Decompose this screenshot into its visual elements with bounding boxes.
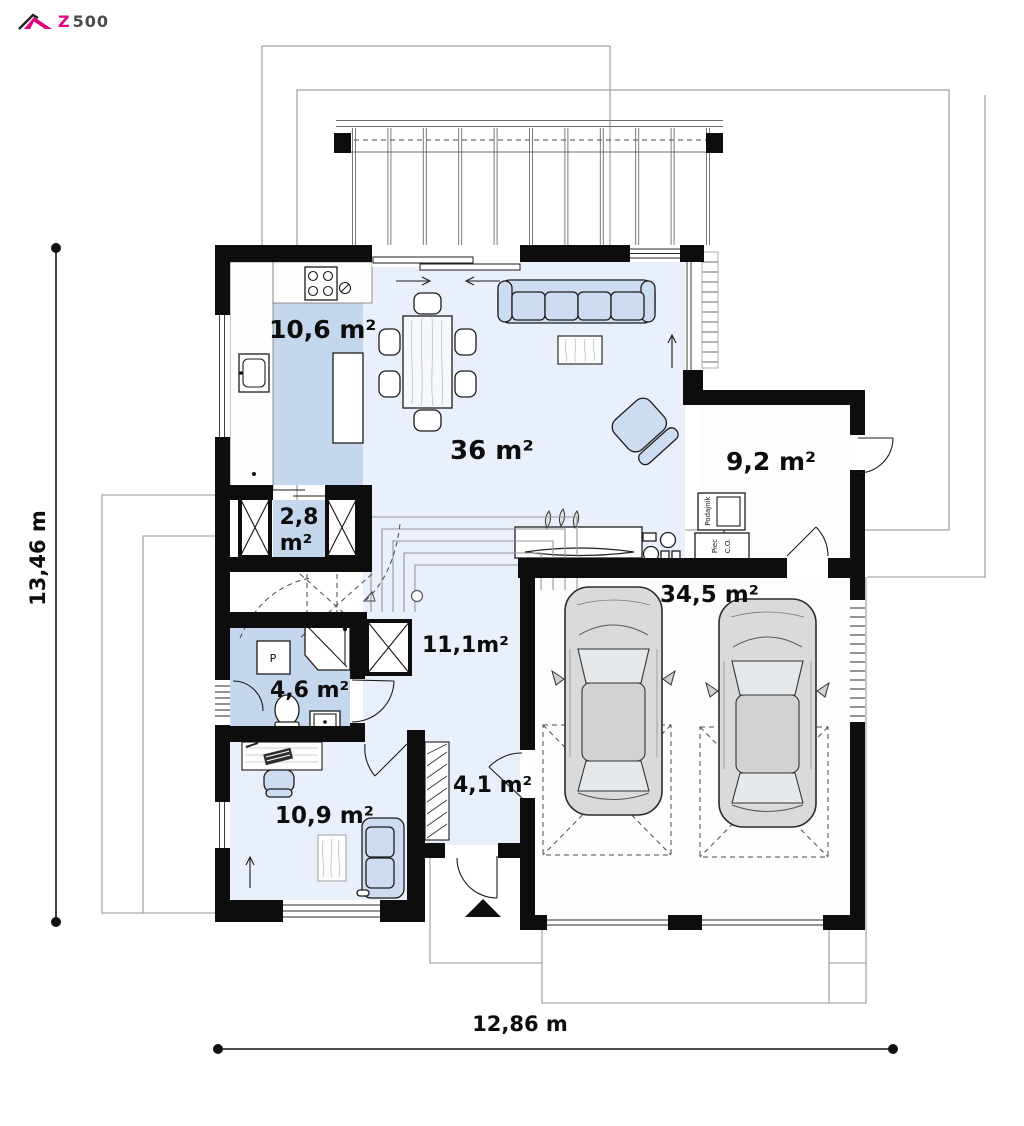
glazed-wall [687,262,691,372]
window [850,600,865,722]
faucet-icon [239,371,243,375]
stove [305,267,337,300]
closet-x-box [240,498,270,557]
office-sofa [357,818,404,898]
roof-outline-left-inner [143,536,222,913]
furnace-label-1: Piec [711,539,719,553]
chair [379,371,400,397]
pantry-area-label-line2: m² [280,531,313,556]
brand-digits: 500 [73,12,109,31]
width-dimension-label: 12,86 m [472,1012,568,1036]
garage-door [702,915,823,930]
living-area-label: 36 m² [450,436,534,466]
coffee-table [558,336,602,364]
floor-plan-drawing: P [0,0,1024,1126]
window [215,680,230,725]
pergola-column-right [706,133,723,153]
chair [414,410,441,431]
boiler-equipment: Podajnik Piec C.O. [695,493,749,560]
boiler-exterior-door [858,438,893,473]
closet-x-box [327,498,357,557]
furnace-label-2: C.O. [724,539,732,554]
kitchen-area-label: 10,6 m² [269,315,376,344]
pantry-area-label-line1: 2,8 [280,505,319,530]
boiler-area-label: 9,2 m² [726,447,816,476]
sofa-arm [498,281,512,322]
window [630,245,680,262]
chair [455,329,476,355]
dimension-vertical: 13,46 m [26,243,61,927]
rug [318,835,346,881]
entry-wardrobe [425,742,449,840]
car [552,587,675,815]
chair [379,329,400,355]
dimension-dot [51,917,61,927]
garage-door [547,915,668,930]
sofa-cushion [545,292,578,320]
car [706,599,829,827]
hall-area-label: 11,1m² [422,633,509,658]
furnace-unit [695,533,749,560]
pantry-sliding-door [273,490,325,496]
dimension-horizontal: 12,86 m [213,1012,898,1054]
sofa-cushion [578,292,611,320]
sofa-cushion [512,292,545,320]
pergola-posts [353,128,710,245]
dimension-dot [213,1044,223,1054]
newel-post [412,591,423,602]
closet-x-box [367,621,410,674]
window [283,900,380,922]
z500-roof-icon [16,8,56,34]
floor-plan-page: Z500 [0,0,1024,1126]
window [215,802,230,848]
window [215,315,230,437]
feeder-label: Podajnik [704,495,712,525]
basin-drain [323,720,327,724]
entrance-arrow-icon [465,899,501,917]
garage-area-label: 34,5 m² [660,582,759,608]
terrace-edge [702,252,718,368]
roof-outline-left [102,495,230,913]
pergola-column-left [334,133,351,153]
dimension-dot [888,1044,898,1054]
height-dimension-label: 13,46 m [26,510,50,606]
kitchen-island [333,353,363,443]
chair [414,293,441,314]
sofa-cushion [611,292,644,320]
entrance-door [457,856,501,917]
chair [455,371,476,397]
bathroom-area-label: 4,6 m² [270,678,349,703]
washer-label: P [270,652,277,665]
office-area-label: 10,9 m² [275,803,374,829]
dimension-dot [51,243,61,253]
appliance-knob [252,472,256,476]
z500-logo: Z500 [16,8,109,34]
brand-letter: Z [58,12,71,31]
driveway-step [829,930,866,1003]
entry-area-label: 4,1 m² [453,773,532,798]
dining-table [403,316,452,408]
desk-chair-back [266,789,292,797]
roof-outline-right [867,95,985,577]
